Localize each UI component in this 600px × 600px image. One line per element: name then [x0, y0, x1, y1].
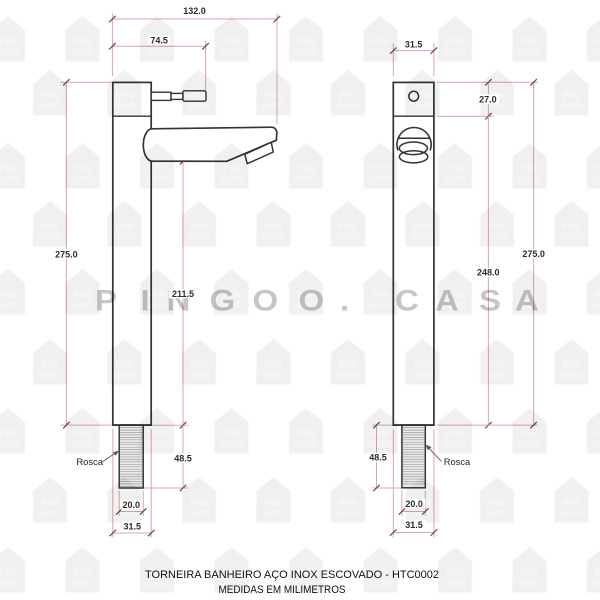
svg-text:275.0: 275.0: [522, 249, 545, 259]
svg-text:Rosca: Rosca: [76, 456, 103, 467]
svg-text:MEDIDAS EM MILIMETROS: MEDIDAS EM MILIMETROS: [219, 584, 346, 596]
svg-text:211.5: 211.5: [172, 289, 194, 299]
svg-text:275.0: 275.0: [55, 249, 78, 259]
svg-text:248.0: 248.0: [477, 268, 500, 278]
svg-text:31.5: 31.5: [124, 521, 142, 531]
svg-text:Rosca: Rosca: [444, 456, 471, 467]
svg-text:31.5: 31.5: [405, 520, 423, 530]
svg-text:48.5: 48.5: [174, 453, 192, 463]
svg-text:27.0: 27.0: [479, 95, 497, 105]
svg-text:31.5: 31.5: [405, 40, 423, 50]
svg-text:20.0: 20.0: [123, 500, 141, 510]
svg-text:TORNEIRA BANHEIRO AÇO INOX ESC: TORNEIRA BANHEIRO AÇO INOX ESCOVADO - HT…: [145, 569, 439, 581]
svg-text:132.0: 132.0: [183, 6, 206, 16]
svg-text:48.5: 48.5: [369, 453, 387, 463]
svg-text:20.0: 20.0: [405, 499, 423, 509]
svg-text:74.5: 74.5: [150, 36, 168, 46]
